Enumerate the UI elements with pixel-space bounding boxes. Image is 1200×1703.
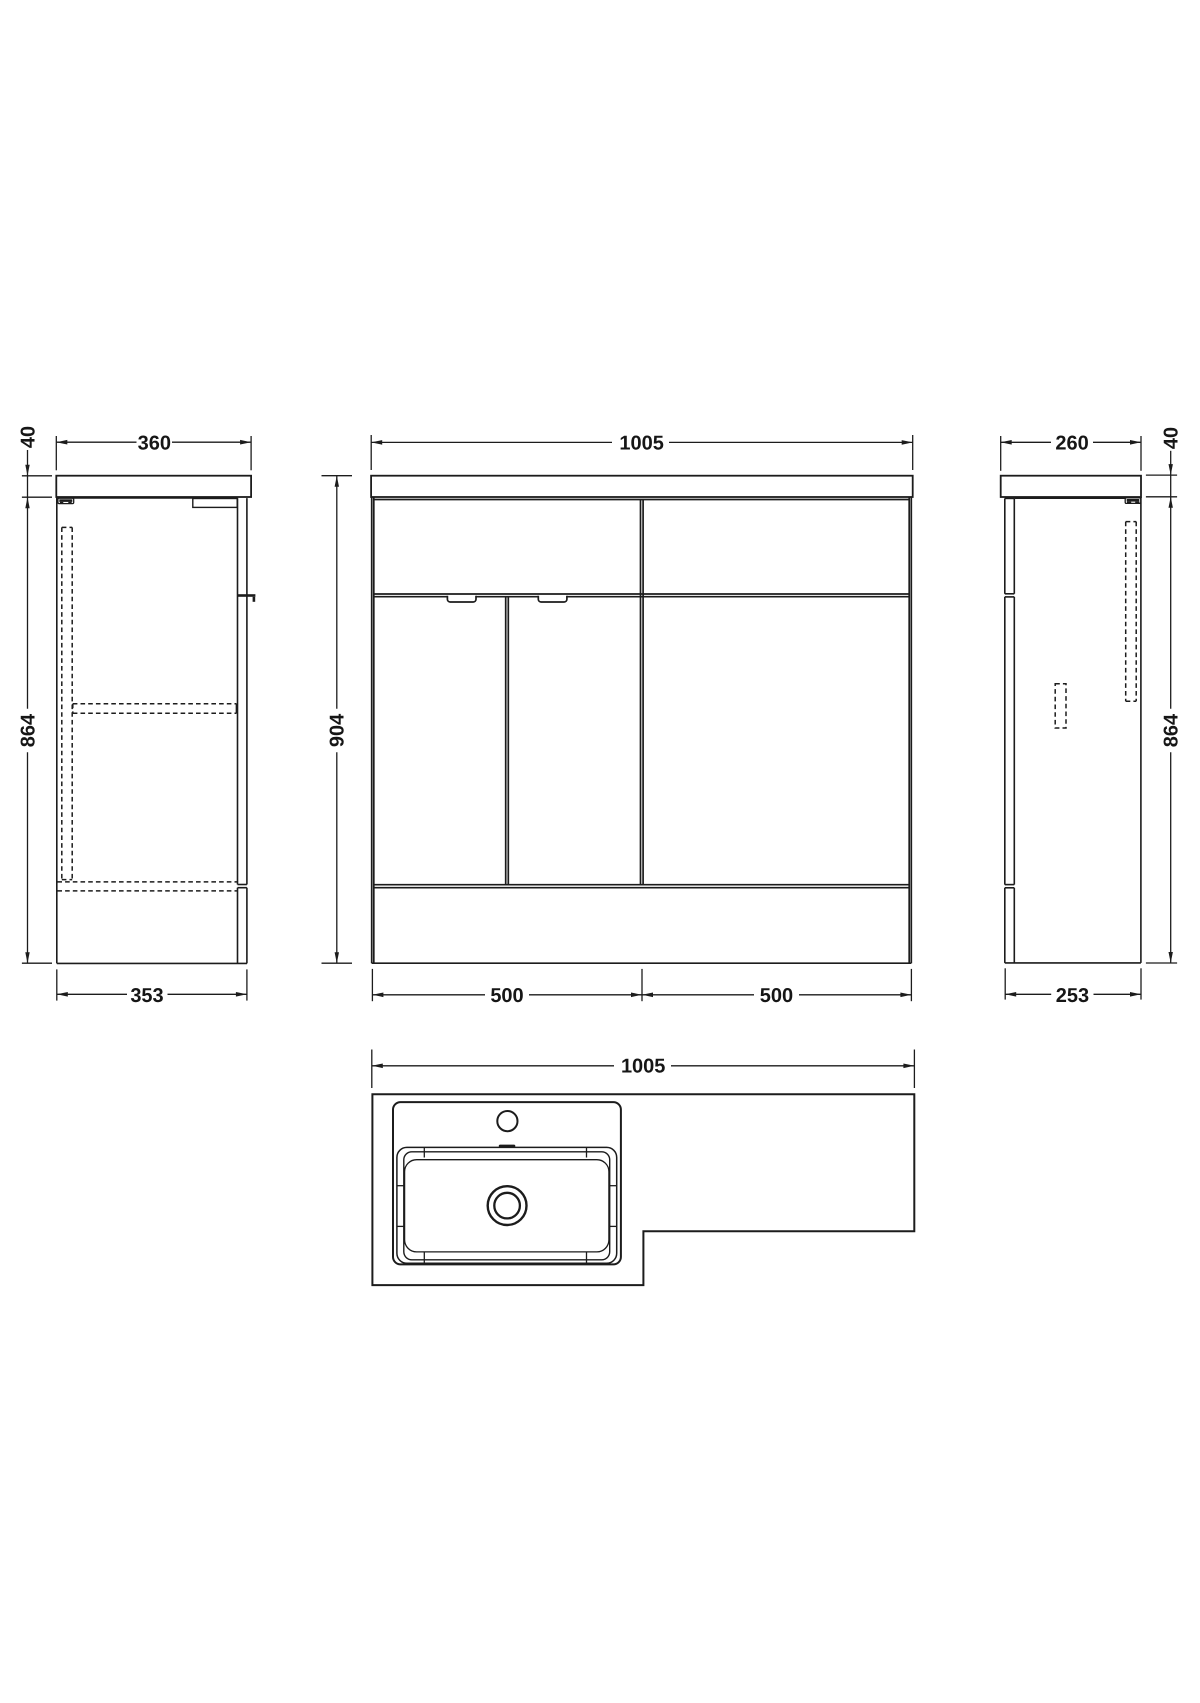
svg-text:360: 360 [138, 432, 171, 454]
svg-text:500: 500 [760, 985, 793, 1007]
svg-text:904: 904 [327, 713, 349, 747]
svg-text:40: 40 [1161, 427, 1183, 449]
svg-text:253: 253 [1056, 985, 1089, 1007]
svg-text:500: 500 [490, 985, 523, 1007]
svg-text:864: 864 [1161, 713, 1183, 747]
svg-text:1005: 1005 [619, 433, 664, 455]
svg-text:260: 260 [1055, 432, 1088, 454]
svg-text:864: 864 [17, 713, 39, 747]
svg-text:40: 40 [17, 426, 39, 448]
svg-text:1005: 1005 [621, 1055, 666, 1077]
svg-text:353: 353 [130, 985, 163, 1007]
